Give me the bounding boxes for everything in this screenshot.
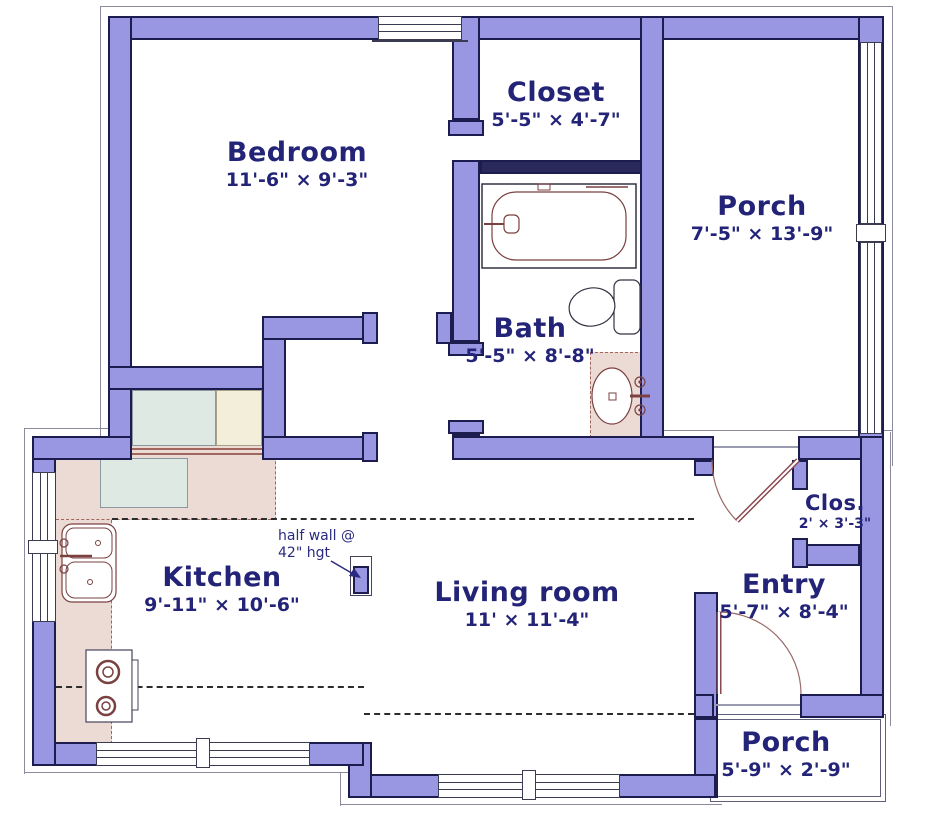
- refrigerator: [132, 390, 216, 446]
- siding-line: [24, 772, 354, 773]
- porch-lower-name: Porch: [721, 728, 850, 758]
- door-jamb: [694, 460, 714, 476]
- window-porch-right-2: [860, 242, 882, 434]
- porch-upper-dims: 7'-5" × 13'-9": [691, 222, 833, 246]
- porch-upper-name: Porch: [691, 192, 833, 222]
- stove-handle: [132, 660, 138, 710]
- room-label-porch-upper: Porch 7'-5" × 13'-9": [691, 192, 833, 246]
- half-wall-note-line2: 42" hgt: [278, 545, 355, 562]
- half-wall-note: half wall @ 42" hgt: [278, 528, 355, 562]
- window-mullion: [196, 738, 210, 768]
- wall-porch-divider: [640, 16, 664, 460]
- siding-line: [100, 6, 101, 464]
- wall-entry-bottom-right: [800, 694, 884, 718]
- wall-exterior-left: [108, 16, 132, 460]
- window-mullion: [856, 224, 886, 242]
- bathtub: [492, 192, 626, 260]
- siding-line: [340, 772, 341, 806]
- kitchen-name: Kitchen: [144, 563, 300, 593]
- wall-bedroom-nook-horizontal: [262, 316, 364, 340]
- room-label-kitchen: Kitchen 9'-11" × 10'-6": [144, 563, 300, 617]
- entry-top-door-leaf: [737, 460, 798, 521]
- door-jamb: [792, 538, 808, 568]
- bedroom-name: Bedroom: [226, 138, 368, 168]
- living-room-name: Living room: [434, 578, 619, 608]
- kitchen-counter-left: [56, 520, 112, 744]
- living-room-dims: 11' × 11'-4": [434, 608, 619, 632]
- half-wall-note-line1: half wall @: [278, 528, 355, 545]
- dashed-line-upper: [112, 518, 694, 520]
- siding-line: [340, 804, 722, 805]
- tub-alcove: [482, 184, 636, 268]
- tub-soap-dish: [538, 184, 550, 190]
- floor-plan: Bedroom 11'-6" × 9'-3" Closet 5'-5" × 4'…: [0, 0, 939, 829]
- dashed-line-living: [364, 713, 694, 715]
- siding-line: [890, 432, 891, 726]
- closet-small-name: Clos.: [799, 492, 871, 515]
- half-wall-post: [353, 566, 369, 594]
- door-jamb: [792, 460, 808, 490]
- door-jamb: [436, 312, 452, 344]
- siding-line: [892, 6, 893, 466]
- window-mullion: [522, 770, 536, 800]
- entry-dims: 5'-7" × 8'-4": [719, 600, 848, 624]
- wall-entry-right: [860, 436, 884, 718]
- toilet-tank: [614, 280, 640, 334]
- siding-line: [100, 6, 892, 7]
- bath-name: Bath: [465, 314, 594, 344]
- siding-line: [24, 428, 108, 429]
- front-door-arc: [719, 612, 801, 694]
- door-threshold: [714, 446, 798, 448]
- room-label-entry: Entry 5'-7" × 8'-4": [719, 570, 848, 624]
- door-jamb: [448, 420, 484, 434]
- door-jamb: [448, 120, 484, 136]
- window-bedroom-top: [378, 16, 462, 40]
- wall-bedroom-bottom: [108, 366, 264, 390]
- door-jamb: [362, 312, 378, 344]
- counter-edge-line: [132, 448, 262, 450]
- tub-faucet: [504, 215, 519, 233]
- wall-kitchen-top: [32, 436, 132, 460]
- siding-line: [24, 428, 25, 774]
- wall-closet-bath-divider: [480, 160, 642, 174]
- room-label-bath: Bath 5'-5" × 8'-8": [465, 314, 594, 368]
- room-label-bedroom: Bedroom 11'-6" × 9'-3": [226, 138, 368, 192]
- pantry-cabinet: [216, 390, 262, 446]
- window-mullion: [28, 540, 58, 554]
- wall-hall-bottom: [262, 436, 364, 460]
- closet-name: Closet: [491, 78, 620, 108]
- room-label-living-room: Living room 11' × 11'-4": [434, 578, 619, 632]
- window-porch-right-1: [860, 42, 882, 224]
- window-glass: [867, 243, 875, 433]
- room-label-closet: Closet 5'-5" × 4'-7": [491, 78, 620, 132]
- dashed-line-kitchen: [56, 686, 364, 688]
- wall-exterior-top: [108, 16, 884, 40]
- entry-top-door-leaf: [737, 460, 798, 521]
- counter-edge-line: [132, 453, 262, 455]
- porch-lower-dims: 5'-9" × 2'-9": [721, 758, 850, 782]
- dishwasher: [100, 458, 188, 508]
- kitchen-dims: 9'-11" × 10'-6": [144, 593, 300, 617]
- room-label-closet-small: Clos. 2' × 3'-3": [799, 492, 871, 534]
- bedroom-dims: 11'-6" × 9'-3": [226, 168, 368, 192]
- wall-entry-bottom-left: [694, 694, 714, 718]
- entry-name: Entry: [719, 570, 848, 600]
- wall-bath-bottom: [452, 436, 714, 460]
- entry-top-door-arc: [712, 460, 737, 521]
- bath-dims: 5'-5" × 8'-8": [465, 344, 594, 368]
- room-label-porch-lower: Porch 5'-9" × 2'-9": [721, 728, 850, 782]
- window-glass: [379, 24, 461, 32]
- window-glass: [867, 43, 875, 223]
- door-threshold: [714, 704, 800, 706]
- window-sill: [372, 40, 468, 42]
- closet-dims: 5'-5" × 4'-7": [491, 108, 620, 132]
- closet-small-dims: 2' × 3'-3": [799, 515, 871, 534]
- door-jamb: [362, 432, 378, 462]
